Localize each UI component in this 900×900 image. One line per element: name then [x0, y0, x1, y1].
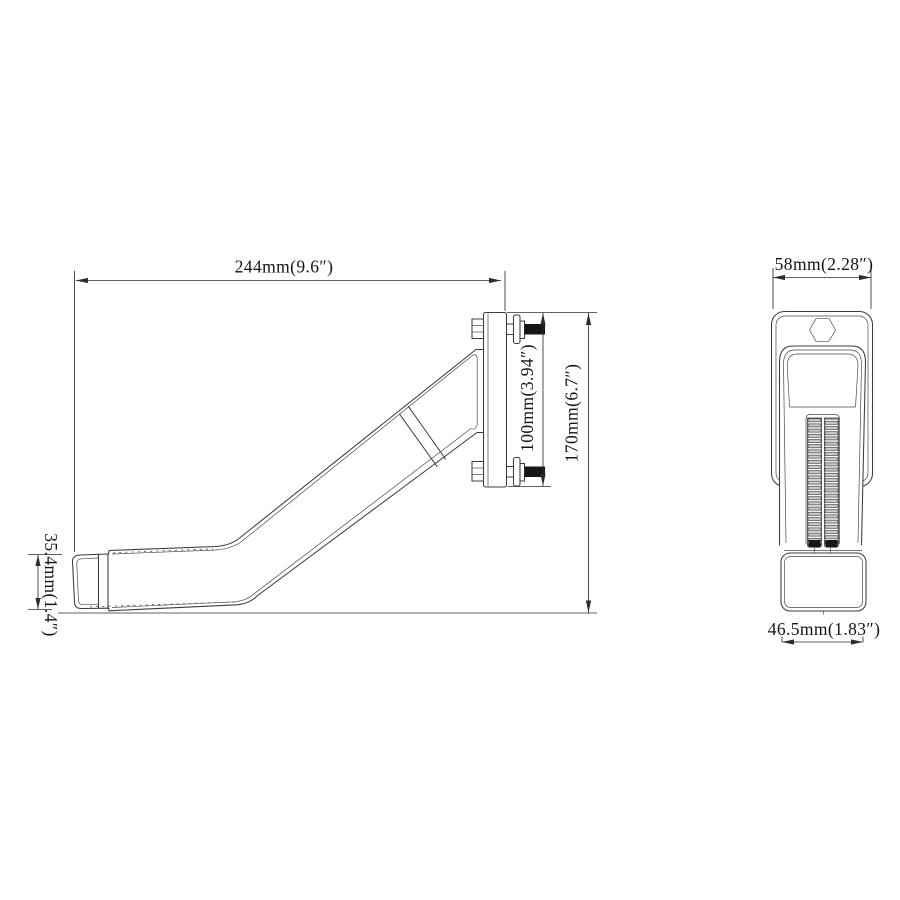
dim-text-overall-width: 244mm(9.6″) — [235, 257, 334, 277]
dim-text-overall-height: 170mm(6.7″) — [562, 364, 582, 463]
bolt-hex-head — [472, 462, 484, 482]
plate-outline — [484, 313, 507, 488]
rib-column-right — [825, 418, 839, 546]
bolt-thread — [525, 324, 546, 335]
mounting-plate-side — [484, 313, 507, 488]
bolt-washer — [514, 458, 521, 487]
rib-column-left — [808, 418, 822, 546]
washer-collar — [520, 464, 525, 482]
lamp-head-front — [781, 547, 866, 615]
dim-text-arm-end-height: 35.4mm(1.4″) — [41, 533, 61, 636]
rib-column-left-end — [809, 540, 821, 548]
bolt-washer — [514, 315, 521, 344]
sheet-background — [0, 0, 900, 900]
lamp-body-front — [780, 346, 866, 548]
boot-outline — [780, 346, 866, 545]
front-view: 58mm(2.28″) — [768, 254, 881, 645]
washer-collar — [520, 321, 525, 339]
dim-text-bottom-width: 46.5mm(1.83″) — [768, 619, 881, 639]
dim-text-bracket-height: 100mm(3.94″) — [517, 344, 537, 452]
technical-drawing-canvas: 244mm(9.6″) — [0, 0, 900, 900]
dim-text-top-width: 58mm(2.28″) — [775, 254, 874, 274]
drawing-sheet: 244mm(9.6″) — [0, 0, 900, 900]
head-outline — [781, 553, 866, 611]
rib-column-right-end — [826, 540, 838, 548]
bolt-hex-head — [472, 319, 484, 339]
